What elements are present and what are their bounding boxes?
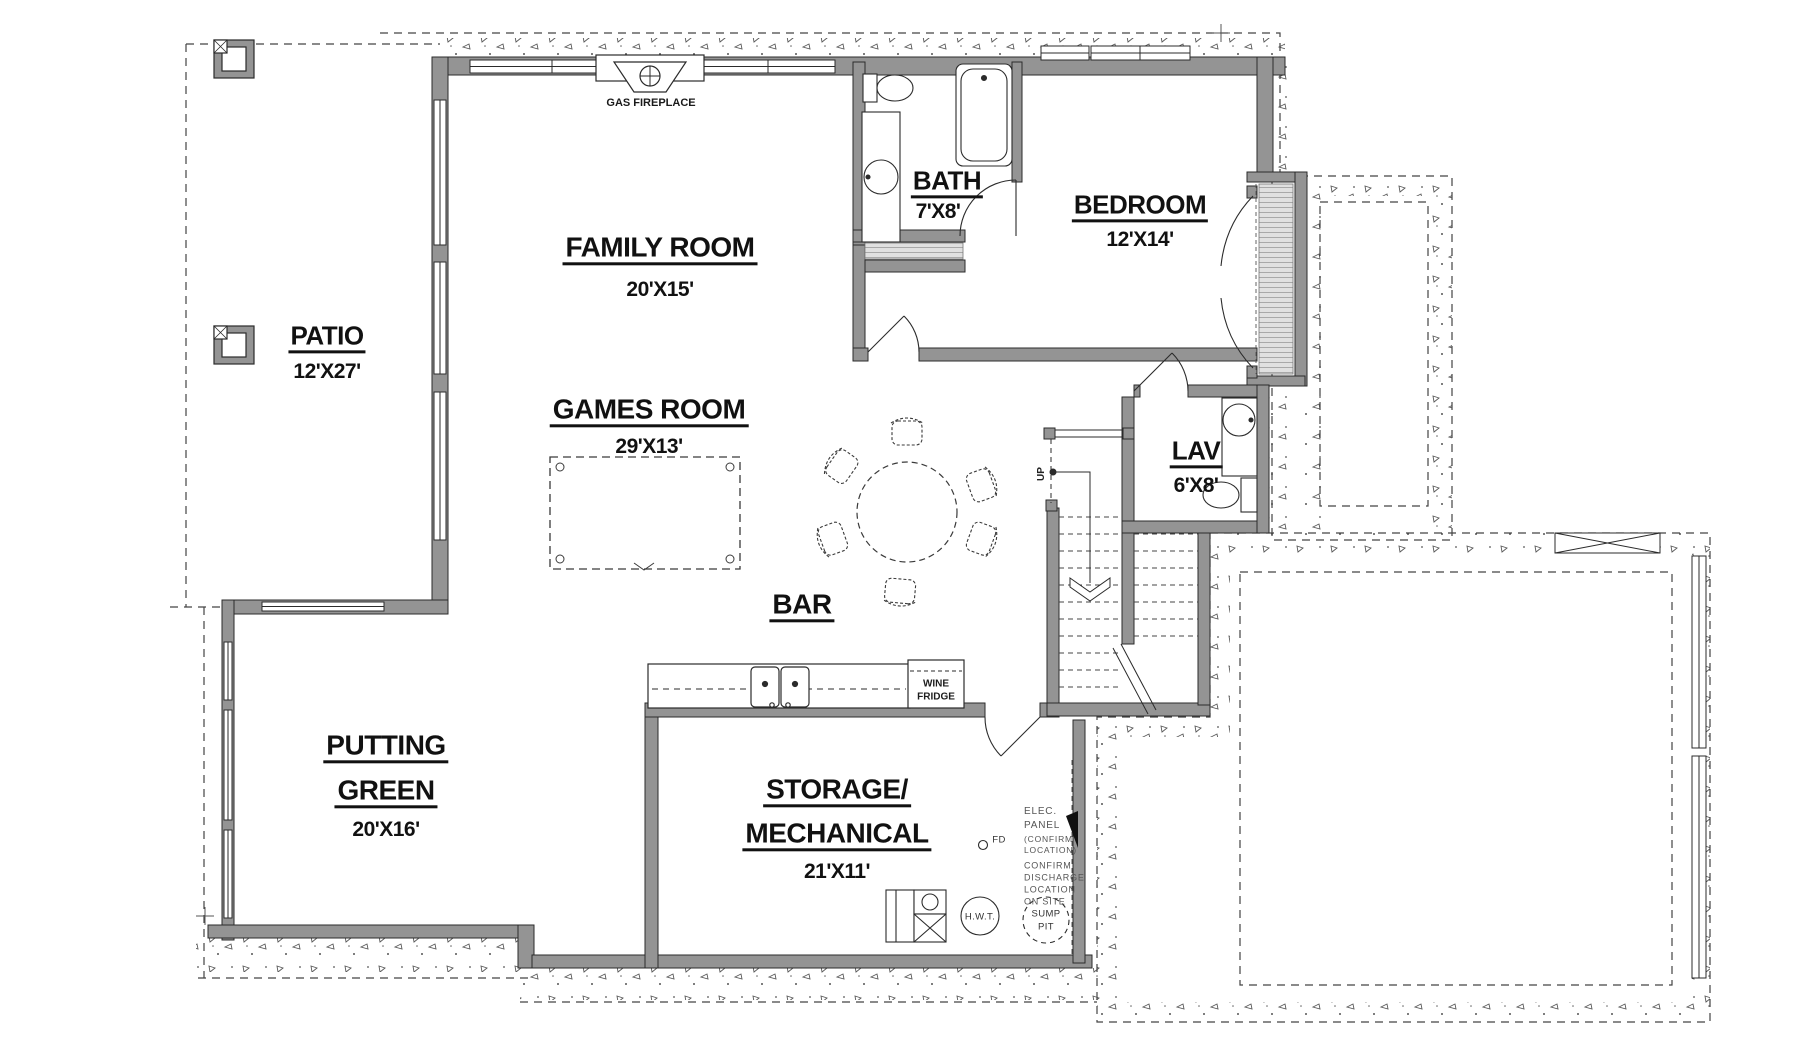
discharge-note-1: CONFIRM xyxy=(1024,861,1072,872)
bath-dims: 7'X8' xyxy=(916,201,961,223)
floor-plan: PATIO 12'X27' FAMILY ROOM 20'X15' BATH 7… xyxy=(0,0,1811,1055)
family-room-dims: 20'X15' xyxy=(626,279,693,301)
storage-label-1: STORAGE/ xyxy=(763,774,911,807)
games-room-dims: 29'X13' xyxy=(615,436,682,458)
bar-label: BAR xyxy=(769,589,834,622)
wine-fridge-label-2: FRIDGE xyxy=(917,691,955,703)
putting-green-label-2: GREEN xyxy=(334,775,437,808)
patio-label: PATIO xyxy=(288,322,365,353)
hot-water-tank-label: H.W.T. xyxy=(965,911,995,922)
putting-green-label-1: PUTTING xyxy=(323,730,448,763)
bedroom-closet xyxy=(1221,184,1293,374)
elec-panel-note-2: PANEL xyxy=(1024,820,1060,832)
games-table xyxy=(550,457,740,570)
stairs-up-label: UP xyxy=(1037,467,1048,481)
stairs xyxy=(1044,428,1198,714)
patio-dims: 12'X27' xyxy=(293,361,360,383)
gas-fireplace-label: GAS FIREPLACE xyxy=(606,98,695,110)
wine-fridge-label-1: WINE xyxy=(923,678,949,690)
elec-panel-note-1: ELEC. xyxy=(1024,806,1057,818)
lav-dims: 6'X8' xyxy=(1174,475,1219,497)
bath-label: BATH xyxy=(911,167,983,198)
discharge-note-4: ON SITE xyxy=(1024,897,1066,908)
patio-posts xyxy=(214,40,254,364)
sump-pit-label-1: SUMP xyxy=(1031,908,1060,919)
family-room-label: FAMILY ROOM xyxy=(563,232,758,265)
bedroom-label: BEDROOM xyxy=(1072,191,1208,222)
floor-plan-canvas xyxy=(0,0,1811,1055)
lav-label: LAV xyxy=(1170,437,1223,468)
putting-green-dims: 20'X16' xyxy=(352,819,419,841)
poker-table xyxy=(813,418,1000,607)
sump-pit-label-2: PIT xyxy=(1038,921,1054,932)
gas-fireplace xyxy=(596,55,704,92)
discharge-note-3: LOCATION xyxy=(1024,885,1076,896)
floor-drain-label: FD xyxy=(992,834,1005,845)
elec-panel-note-4: LOCATION) xyxy=(1024,845,1077,855)
bedroom-dims: 12'X14' xyxy=(1106,229,1173,251)
storage-dims: 21'X11' xyxy=(804,861,870,883)
games-room-label: GAMES ROOM xyxy=(550,394,749,427)
elec-panel-note-3: (CONFIRM xyxy=(1024,834,1073,844)
discharge-note-2: DISCHARGE xyxy=(1024,873,1085,884)
storage-label-2: MECHANICAL xyxy=(742,818,931,851)
